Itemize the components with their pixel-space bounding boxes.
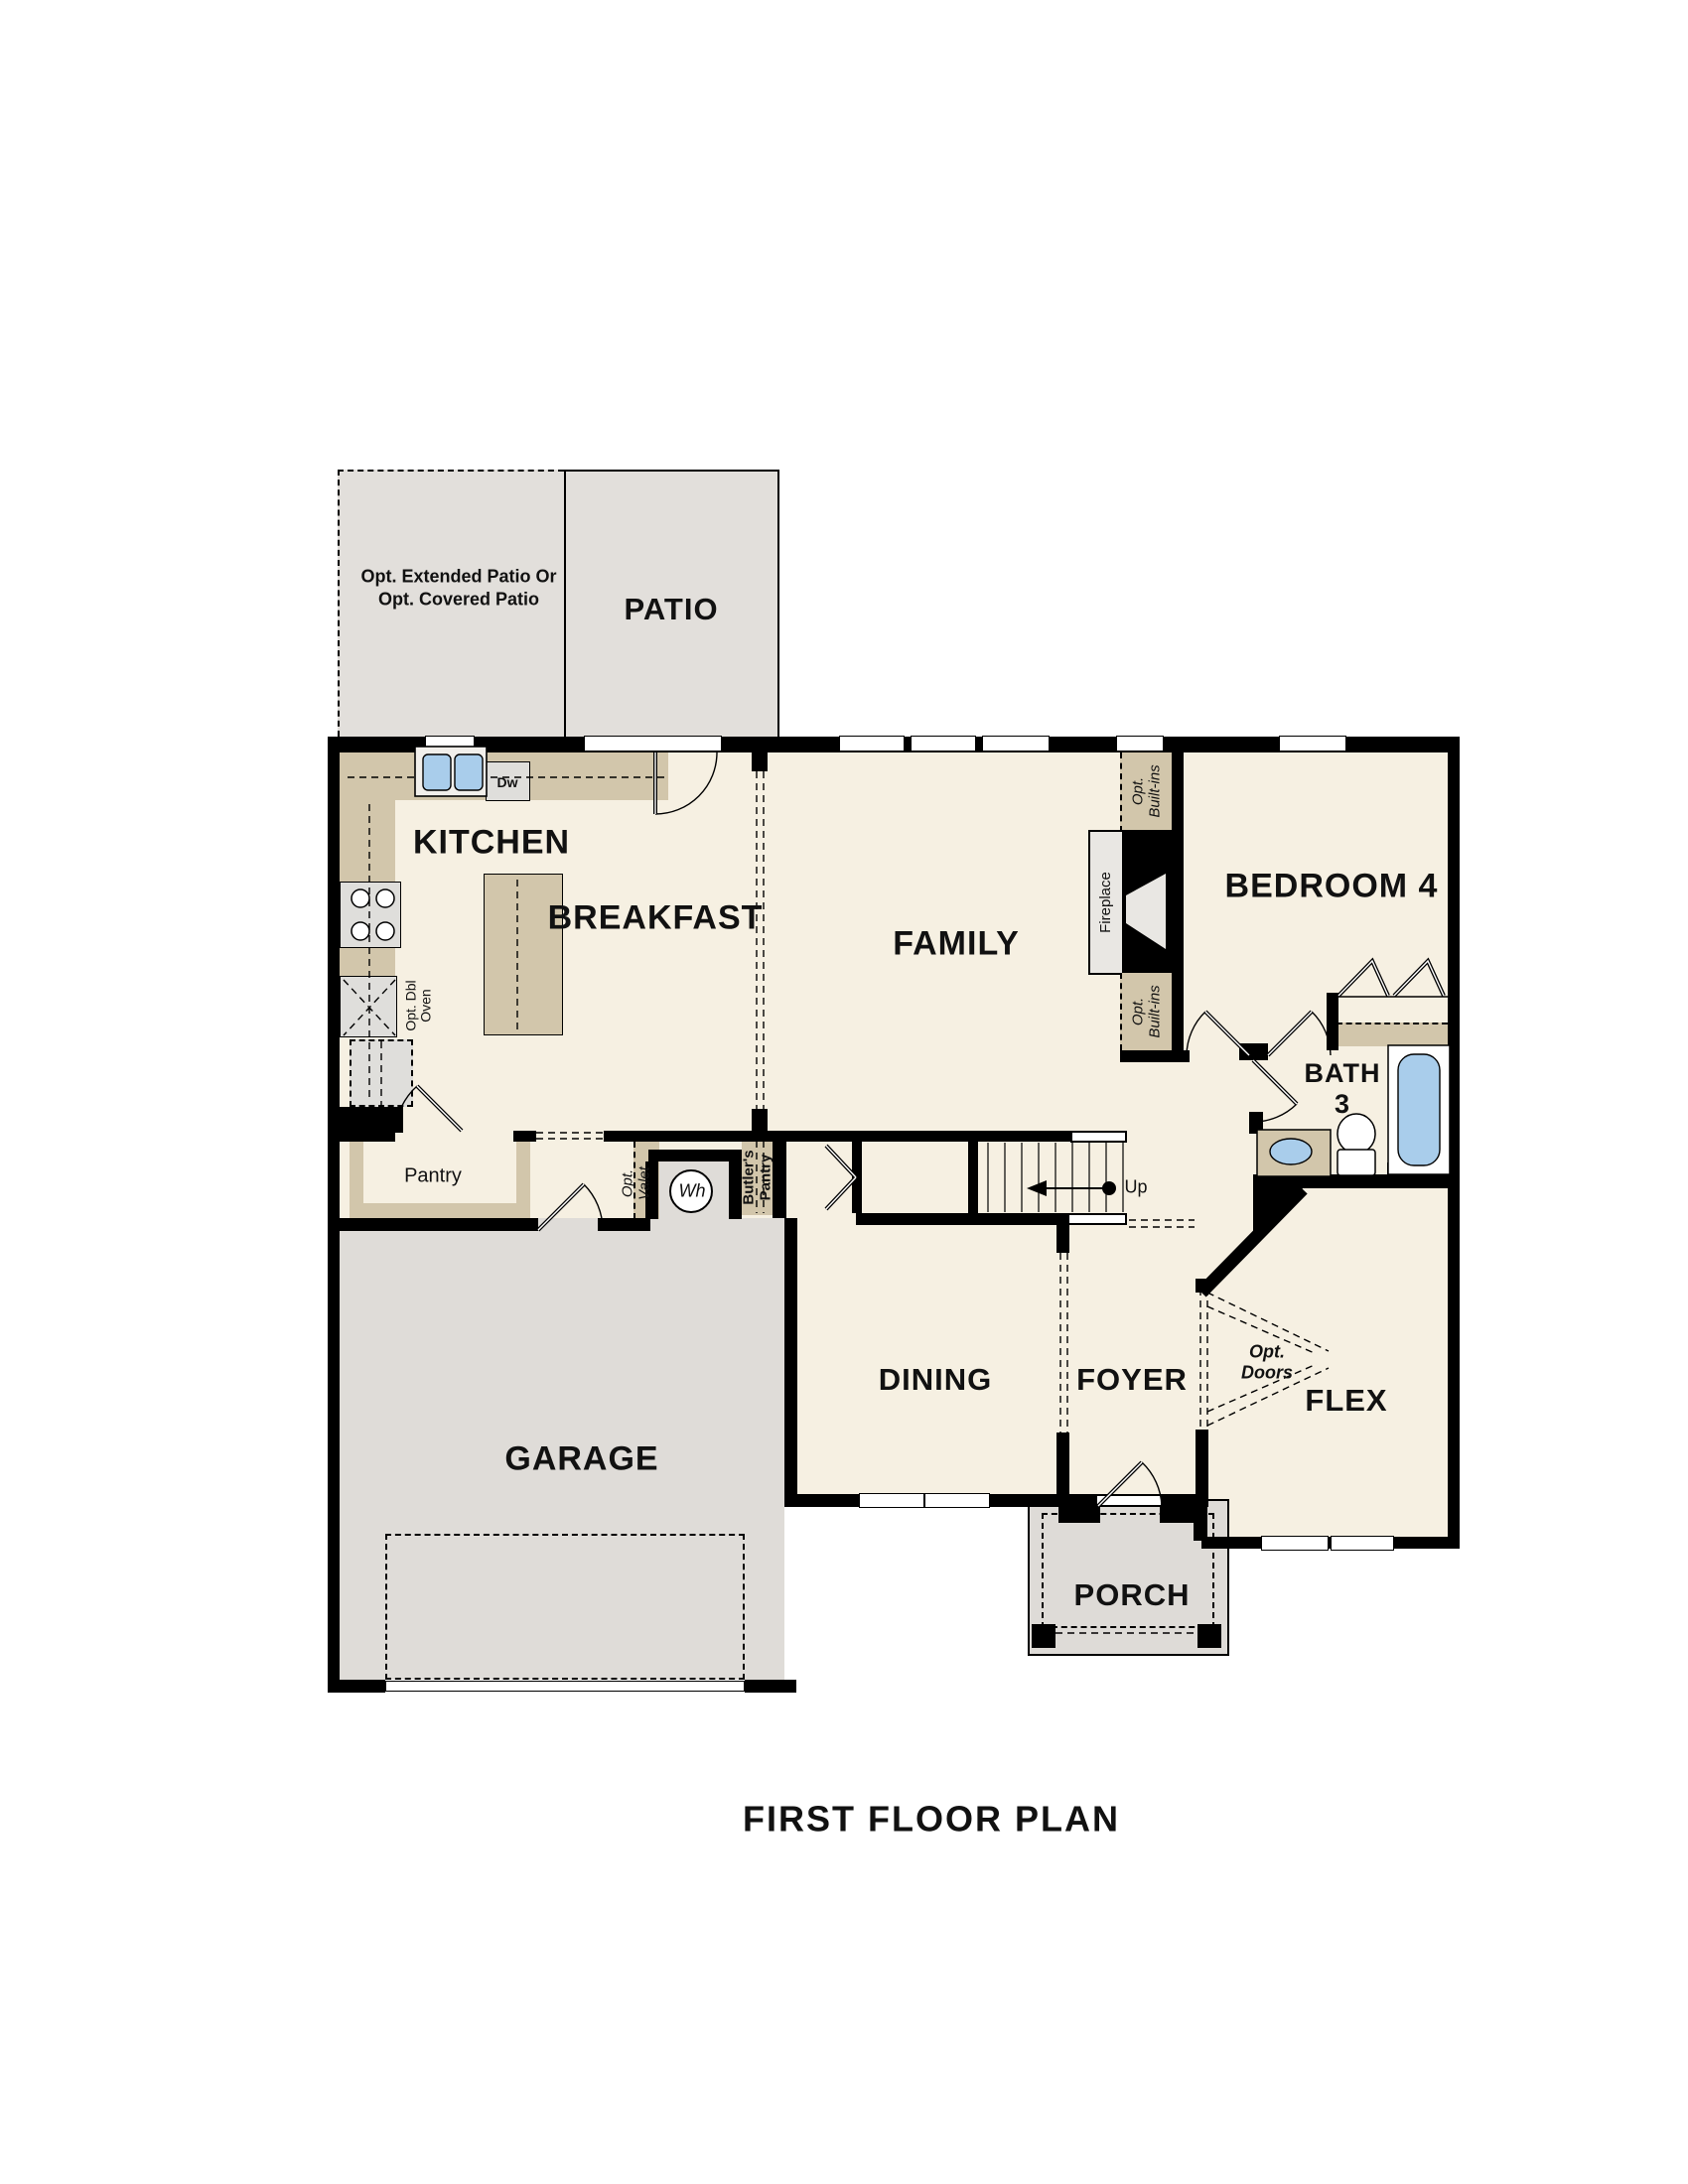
range-burners (352, 889, 394, 940)
burner-4 (376, 922, 394, 940)
opt-valet-label: Opt. Valet (621, 1166, 653, 1200)
bedroom4-door-arc (1312, 1012, 1331, 1055)
breakfast-label: BREAKFAST (548, 898, 764, 937)
stair-treads (988, 1143, 1123, 1212)
flex-label: FLEX (1305, 1383, 1387, 1419)
understair-closet-doors-core (826, 1146, 856, 1209)
up-arrow-dot (1102, 1181, 1116, 1195)
bedroom4-closet-doors (1338, 961, 1444, 996)
opt-doors-opening-dashed (1200, 1289, 1207, 1430)
pantry-door-leaf-core (417, 1086, 462, 1131)
opt-builtins-top-label: Opt. Built-ins (1131, 764, 1164, 817)
pantry-label: Pantry (404, 1165, 462, 1188)
hall-door-leaf-core (1205, 1012, 1249, 1055)
pantry-door-arc (395, 1086, 417, 1131)
opt-doors-label: Opt. Doors (1241, 1341, 1293, 1382)
firebox (1126, 874, 1166, 949)
bath3-door-arc (1253, 1104, 1297, 1122)
bedroom4-label: BEDROOM 4 (1225, 867, 1439, 905)
garage-entry-door-leaf-core (538, 1184, 584, 1230)
breakfast-door-arc (655, 752, 717, 814)
family-label: FAMILY (893, 924, 1020, 963)
understair-closet-doors (826, 1146, 856, 1209)
front-door-arc (1142, 1462, 1162, 1506)
burner-1 (352, 889, 369, 907)
bath3-door-leaf-core (1253, 1060, 1297, 1104)
opt-builtins-bottom-label: Opt. Built-ins (1131, 985, 1164, 1037)
dining-label: DINING (879, 1362, 993, 1398)
dining-foyer-divider-dashed (1060, 1253, 1067, 1433)
burner-3 (352, 922, 369, 940)
hall-door-arc (1187, 1012, 1205, 1055)
sink-basin-right (455, 754, 483, 790)
tub (1398, 1054, 1440, 1165)
mud-opening-dashed (536, 1133, 604, 1139)
hall-foyer-opening-dashed (1129, 1220, 1195, 1227)
fireplace-label: Fireplace (1098, 872, 1115, 933)
garage-entry-door-arc (584, 1184, 603, 1230)
bath3-label: BATH 3 (1305, 1058, 1381, 1120)
up-label: Up (1124, 1177, 1147, 1198)
dishwasher-label: Dw (497, 774, 518, 790)
plan-linework (0, 0, 1688, 2184)
patio-label: PATIO (624, 592, 718, 627)
butlers-pantry-label: Butler's Pantry (742, 1150, 774, 1204)
sink-basin-left (423, 754, 451, 790)
door-arcs (395, 752, 1331, 1506)
wall-flex-diagonal (1201, 1189, 1303, 1293)
stair-tread-lines (988, 1143, 1123, 1212)
plan-title: FIRST FLOOR PLAN (743, 1798, 1120, 1839)
up-arrow-head (1027, 1180, 1047, 1196)
water-heater-label: Wh (679, 1181, 706, 1202)
vanity-sink (1270, 1139, 1312, 1164)
front-door-leaf-core (1098, 1462, 1142, 1506)
porch-label: PORCH (1074, 1577, 1191, 1613)
foyer-label: FOYER (1076, 1362, 1188, 1398)
bedroom4-door-leaf-core (1268, 1012, 1312, 1055)
burner-2 (376, 889, 394, 907)
garage-label: GARAGE (504, 1439, 658, 1478)
toilet-tank (1337, 1150, 1375, 1175)
kitchen-label: KITCHEN (413, 823, 570, 862)
dashed-lines (344, 771, 1329, 1633)
first-floor-plan: Opt. Extended Patio Or Opt. Covered Pati… (0, 0, 1688, 2184)
breakfast-family-divider-dashed (757, 771, 764, 1213)
optional-patio-label: Opt. Extended Patio Or Opt. Covered Pati… (300, 566, 618, 613)
opt-dbl-oven-label: Opt. Dbl Oven (404, 980, 435, 1030)
